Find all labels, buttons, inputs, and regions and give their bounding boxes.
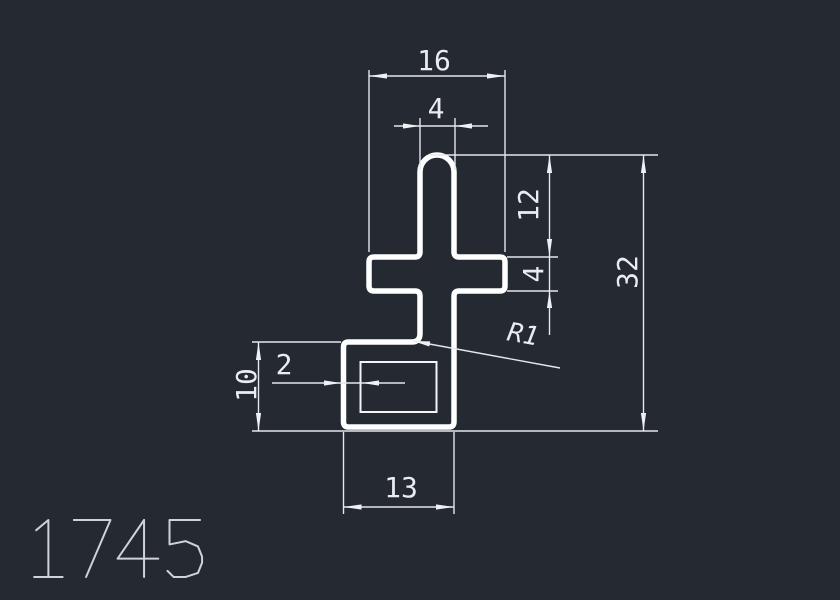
dim-stem-width: 4: [394, 92, 488, 170]
dim-overall-height-label: 32: [611, 255, 644, 289]
dim-arm-thickness-label: 4: [517, 266, 550, 283]
part-number-glyph-stroke: [118, 520, 159, 559]
leader-line: [413, 341, 560, 368]
arrowhead: [455, 123, 472, 128]
dim-wall-thickness-label: 2: [276, 348, 293, 381]
arrowhead: [256, 413, 261, 431]
arrowhead: [547, 239, 552, 257]
arrowhead: [641, 413, 646, 431]
part-number-glyph-stroke: [36, 520, 48, 577]
arrowhead: [369, 73, 387, 78]
dim-wall-thickness: 2: [272, 348, 405, 386]
arrowhead: [547, 155, 552, 173]
profile-outline-path: [344, 155, 506, 427]
dim-upper-height: 12: [507, 155, 558, 257]
cad-drawing-viewport: 16 4 12 4 32 10: [0, 0, 840, 600]
part-number-glyph-stroke: [167, 520, 202, 577]
arrowhead: [324, 380, 341, 385]
dim-base-height-label: 10: [230, 368, 263, 402]
arrowhead: [344, 504, 362, 509]
dim-arm-width-label: 16: [417, 44, 451, 77]
arrowhead: [362, 380, 379, 385]
part-number-glyph-stroke: [74, 520, 111, 577]
arrowhead: [487, 73, 505, 78]
arrowhead: [547, 291, 552, 308]
profile-cross-section: [344, 155, 506, 427]
dim-base-width: 13: [344, 432, 455, 514]
dim-overall-height: 32: [611, 155, 646, 431]
dim-upper-height-label: 12: [512, 188, 545, 222]
dim-base-width-label: 13: [384, 471, 418, 504]
arrowhead: [256, 342, 261, 360]
dim-arm-width: 16: [369, 44, 505, 252]
dim-stem-width-label: 4: [428, 92, 445, 125]
technical-drawing-canvas: 16 4 12 4 32 10: [0, 0, 840, 600]
part-number-text: [34, 520, 202, 577]
arrowhead: [436, 504, 454, 509]
arrowhead: [641, 155, 646, 173]
dim-fillet-radius-label: R1: [505, 318, 541, 353]
arrowhead: [403, 123, 420, 128]
dim-fillet-radius: R1: [413, 318, 560, 368]
profile-hollow-core: [361, 362, 437, 412]
